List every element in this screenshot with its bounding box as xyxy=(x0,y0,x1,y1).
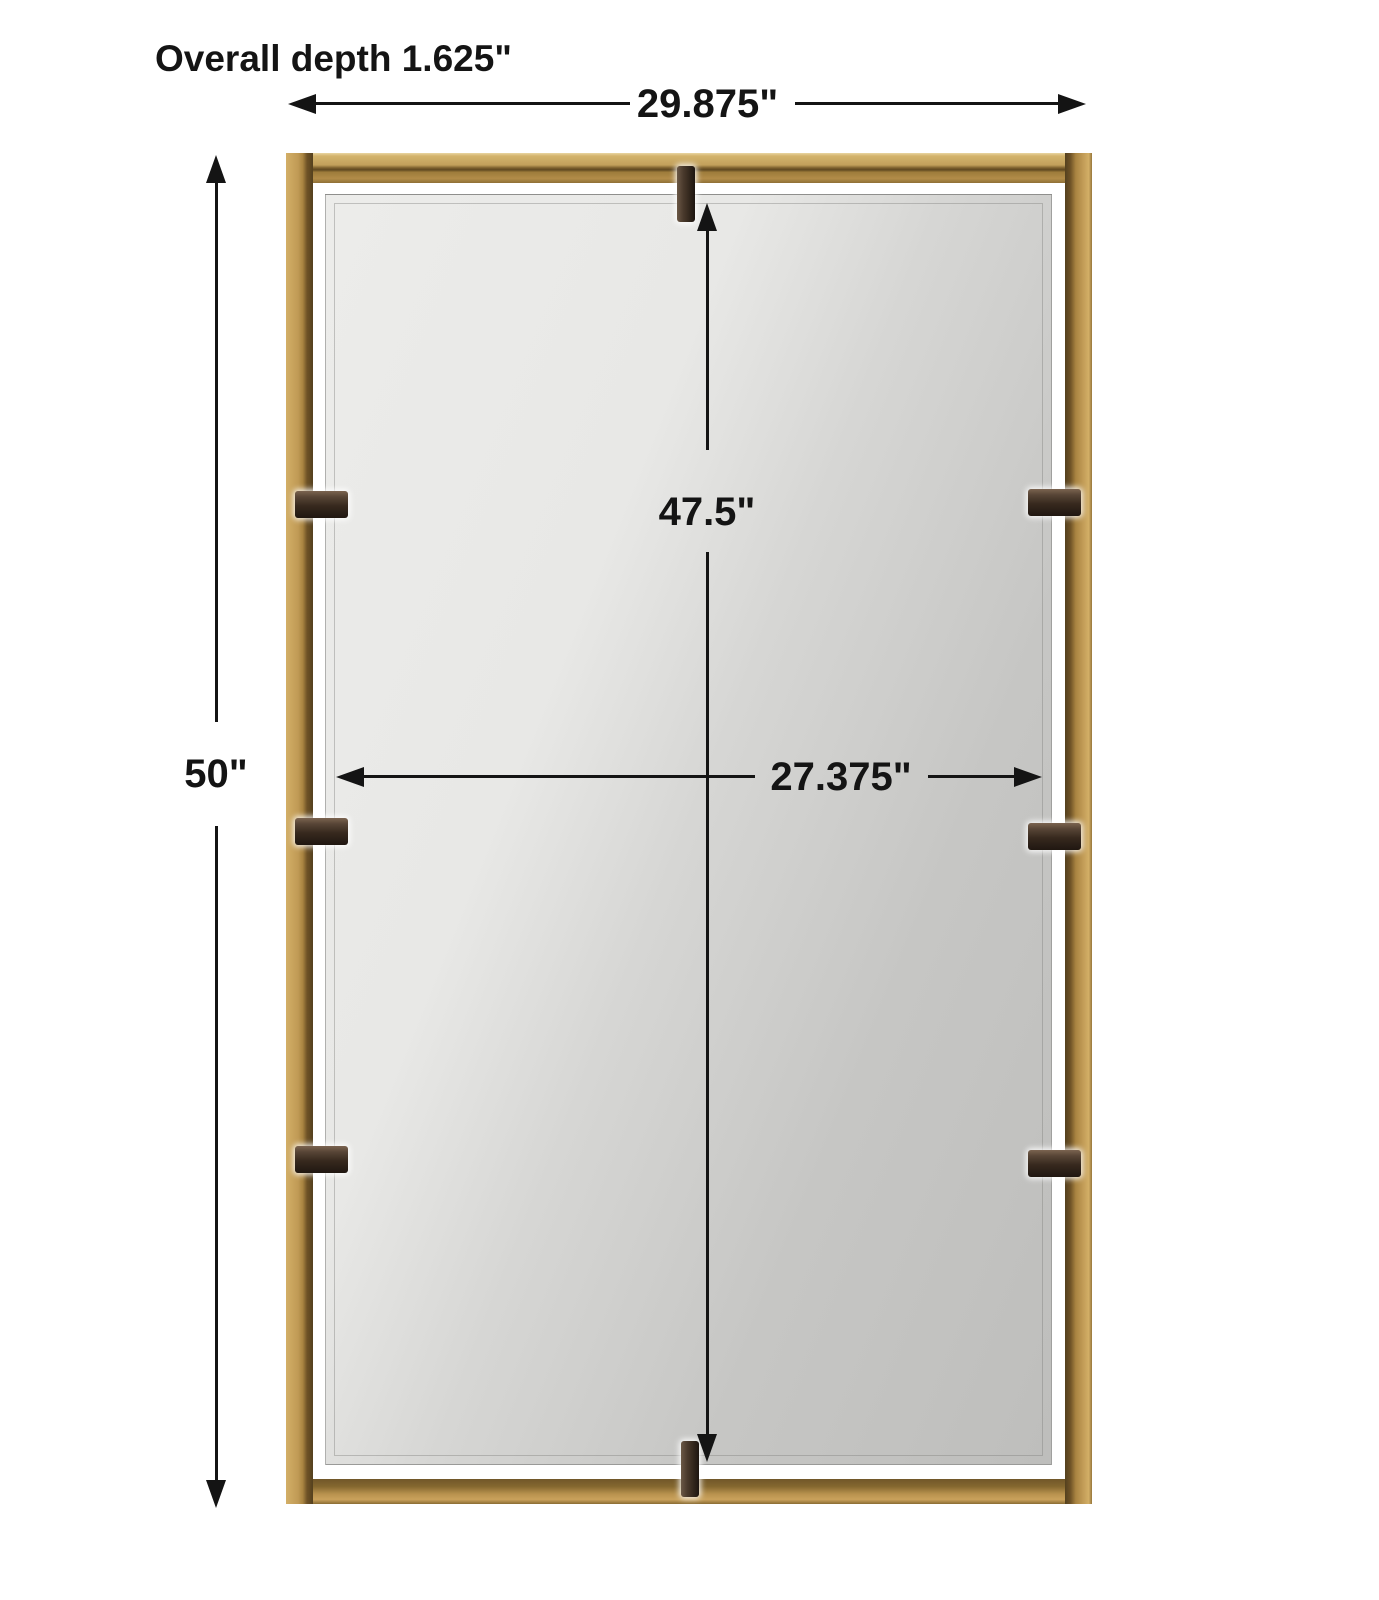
clip-left-middle xyxy=(295,818,348,845)
arrowhead-up-icon xyxy=(206,155,226,183)
dimension-line xyxy=(215,826,218,1482)
dimension-line xyxy=(364,775,755,778)
mirror-height-label: 47.5" xyxy=(627,490,787,534)
arrowhead-left-icon xyxy=(336,767,364,787)
mirror-bevel-line xyxy=(334,203,1043,1456)
dimension-line xyxy=(795,102,1063,105)
clip-left-upper xyxy=(295,491,348,518)
dimension-line xyxy=(315,102,630,105)
clip-right-middle xyxy=(1028,823,1081,850)
mirror-dimension-diagram: Overall depth 1.625" 29.875" 50" 47.5" xyxy=(0,0,1379,1600)
arrowhead-right-icon xyxy=(1058,94,1086,114)
overall-depth-label: Overall depth 1.625" xyxy=(155,38,512,80)
dimension-line xyxy=(928,775,1016,778)
overall-width-label: 29.875" xyxy=(620,82,795,126)
mirror-glass xyxy=(325,194,1052,1465)
clip-right-lower xyxy=(1028,1150,1081,1177)
dimension-line xyxy=(215,183,218,722)
overall-height-label: 50" xyxy=(146,752,286,796)
clip-top-center xyxy=(677,166,695,222)
clip-right-upper xyxy=(1028,489,1081,516)
mirror-width-label: 27.375" xyxy=(757,755,925,799)
dimension-line xyxy=(706,231,709,450)
dimension-line xyxy=(706,552,709,1436)
arrowhead-down-icon xyxy=(206,1480,226,1508)
arrowhead-right-icon xyxy=(1014,767,1042,787)
arrowhead-down-icon xyxy=(697,1434,717,1462)
arrowhead-left-icon xyxy=(288,94,316,114)
clip-left-lower xyxy=(295,1146,348,1173)
arrowhead-up-icon xyxy=(697,203,717,231)
